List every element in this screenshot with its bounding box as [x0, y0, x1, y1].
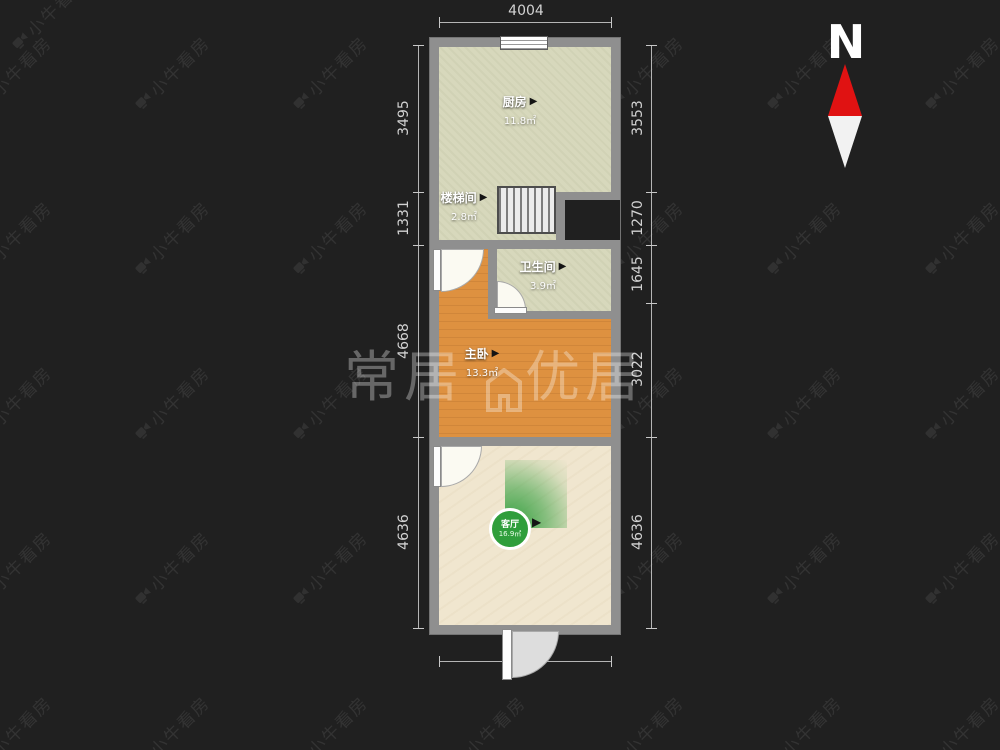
dim-line-right: [651, 45, 652, 628]
watermark-tile: 小牛看房: [760, 689, 846, 750]
watermark-text: 小牛看房: [143, 689, 214, 750]
bathroom-area: 3.9㎡: [520, 277, 567, 292]
watermark-tile: 小牛看房: [760, 194, 846, 280]
living-name: 客厅: [501, 520, 519, 530]
dim-left-1: 1331: [396, 200, 412, 236]
watermark-tile: 小牛看房: [0, 689, 57, 750]
watermark-text: 小牛看房: [301, 689, 372, 750]
play-arrow-icon[interactable]: ▶: [492, 348, 500, 359]
watermark-text: 小牛看房: [459, 689, 530, 750]
bedroom-door-leaf: [433, 249, 441, 291]
kitchen-area: 11.8㎡: [503, 112, 538, 127]
watermark-tile: 小牛看房: [0, 29, 57, 115]
watermark-tile: 小牛看房: [918, 689, 1000, 750]
entry-door-leaf: [502, 629, 512, 680]
bathroom-name: 卫生间: [520, 258, 556, 275]
bathroom-door-leaf: [494, 307, 527, 314]
building-notch: [565, 200, 620, 240]
watermark-text: 小牛看房: [617, 194, 688, 265]
watermark-tile: 小牛看房: [760, 524, 846, 610]
bedroom-area: 13.3㎡: [465, 364, 500, 379]
watermark-tile: 小牛看房: [760, 359, 846, 445]
dim-line-top: [440, 22, 612, 23]
watermark-text: 小牛看房: [775, 689, 846, 750]
dim-top: 4004: [508, 3, 544, 19]
watermark-tile: 小牛看房: [286, 689, 372, 750]
watermark-text: 小牛看房: [0, 689, 57, 750]
dim-right-1: 1270: [630, 200, 646, 236]
watermark-tile: 小牛看房: [918, 29, 1000, 115]
watermark-text: 小牛看房: [0, 194, 57, 265]
bedroom-name: 主卧: [465, 345, 489, 362]
dim-right-2: 1645: [630, 256, 646, 292]
dim-right-4: 4636: [630, 514, 646, 550]
watermark-text: 小牛看房: [143, 359, 214, 430]
room-label-stairwell[interactable]: 楼梯间▶ 2.8㎡: [441, 189, 488, 223]
watermark-tile: 小牛看房: [918, 359, 1000, 445]
dim-left-0: 3495: [396, 100, 412, 136]
watermark-text: 小牛看房: [933, 359, 1000, 430]
room-label-bedroom[interactable]: 主卧▶ 13.3㎡: [465, 345, 500, 379]
watermark-tile: 小牛看房: [918, 194, 1000, 280]
watermark-text: 小牛看房: [0, 524, 57, 595]
watermark-tile: 小牛看房: [0, 524, 57, 610]
watermark-text: 小牛看房: [933, 524, 1000, 595]
watermark-tile: 小牛看房: [128, 29, 214, 115]
watermark-tile: 小牛看房: [918, 524, 1000, 610]
watermark-text: 小牛看房: [933, 689, 1000, 750]
watermark-tile: 小牛看房: [444, 689, 530, 750]
stairwell-area: 2.8㎡: [441, 208, 488, 223]
watermark-tile: 小牛看房: [286, 524, 372, 610]
watermark-text: 小牛看房: [143, 524, 214, 595]
stairwell-name: 楼梯间: [441, 189, 477, 206]
room-label-bathroom[interactable]: 卫生间▶ 3.9㎡: [520, 258, 567, 292]
watermark-text: 小牛看房: [0, 359, 57, 430]
brand-watermark-left: 常居: [344, 332, 464, 412]
play-arrow-icon[interactable]: ▶: [530, 96, 538, 107]
dim-left-3: 4636: [396, 514, 412, 550]
watermark-text: 小牛看房: [775, 359, 846, 430]
watermark-text: 小牛看房: [775, 194, 846, 265]
watermark-tile: 小牛看房: [0, 194, 57, 280]
watermark-tile: 小牛看房: [128, 359, 214, 445]
watermark-text: 小牛看房: [20, 0, 91, 41]
north-label: N: [827, 15, 866, 69]
watermark-tile: 小牛看房: [286, 194, 372, 280]
watermark-text: 小牛看房: [143, 29, 214, 100]
watermark-tile: 小牛看房: [286, 29, 372, 115]
watermark-tile: 小牛看房: [0, 359, 57, 445]
watermark-tile: 小牛看房: [128, 194, 214, 280]
north-arrow-red: [828, 64, 862, 116]
watermark-text: 小牛看房: [301, 524, 372, 595]
kitchen-window: [500, 36, 548, 50]
watermark-text: 小牛看房: [617, 524, 688, 595]
watermark-text: 小牛看房: [301, 29, 372, 100]
watermark-text: 小牛看房: [143, 194, 214, 265]
living-area: 16.9㎡: [499, 530, 522, 538]
watermark-tile: 小牛看房: [128, 524, 214, 610]
room-label-living[interactable]: 客厅 16.9㎡: [489, 508, 531, 550]
play-arrow-icon[interactable]: ▶: [559, 261, 567, 272]
watermark-text: 小牛看房: [301, 194, 372, 265]
watermark-text: 小牛看房: [775, 524, 846, 595]
stairs: [497, 186, 556, 234]
kitchen-name: 厨房: [503, 93, 527, 110]
north-arrow-white: [828, 116, 862, 168]
play-arrow-icon[interactable]: ▶: [532, 515, 541, 529]
bathroom-left-wall: [488, 249, 497, 311]
play-arrow-icon[interactable]: ▶: [480, 192, 488, 203]
watermark-text: 小牛看房: [617, 29, 688, 100]
room-label-kitchen[interactable]: 厨房▶ 11.8㎡: [503, 93, 538, 127]
watermark-text: 小牛看房: [617, 689, 688, 750]
floorplan-page: 小牛看房 小牛看房 小牛看房 小牛看房: [0, 0, 1000, 750]
watermark-tile: 小牛看房: [128, 689, 214, 750]
living-door-leaf: [433, 446, 441, 487]
watermark-text: 小牛看房: [933, 194, 1000, 265]
watermark-tile: 小牛看房: [602, 689, 688, 750]
dim-right-0: 3553: [630, 100, 646, 136]
watermark-text: 小牛看房: [933, 29, 1000, 100]
brand-watermark-right: 优居: [525, 332, 645, 412]
